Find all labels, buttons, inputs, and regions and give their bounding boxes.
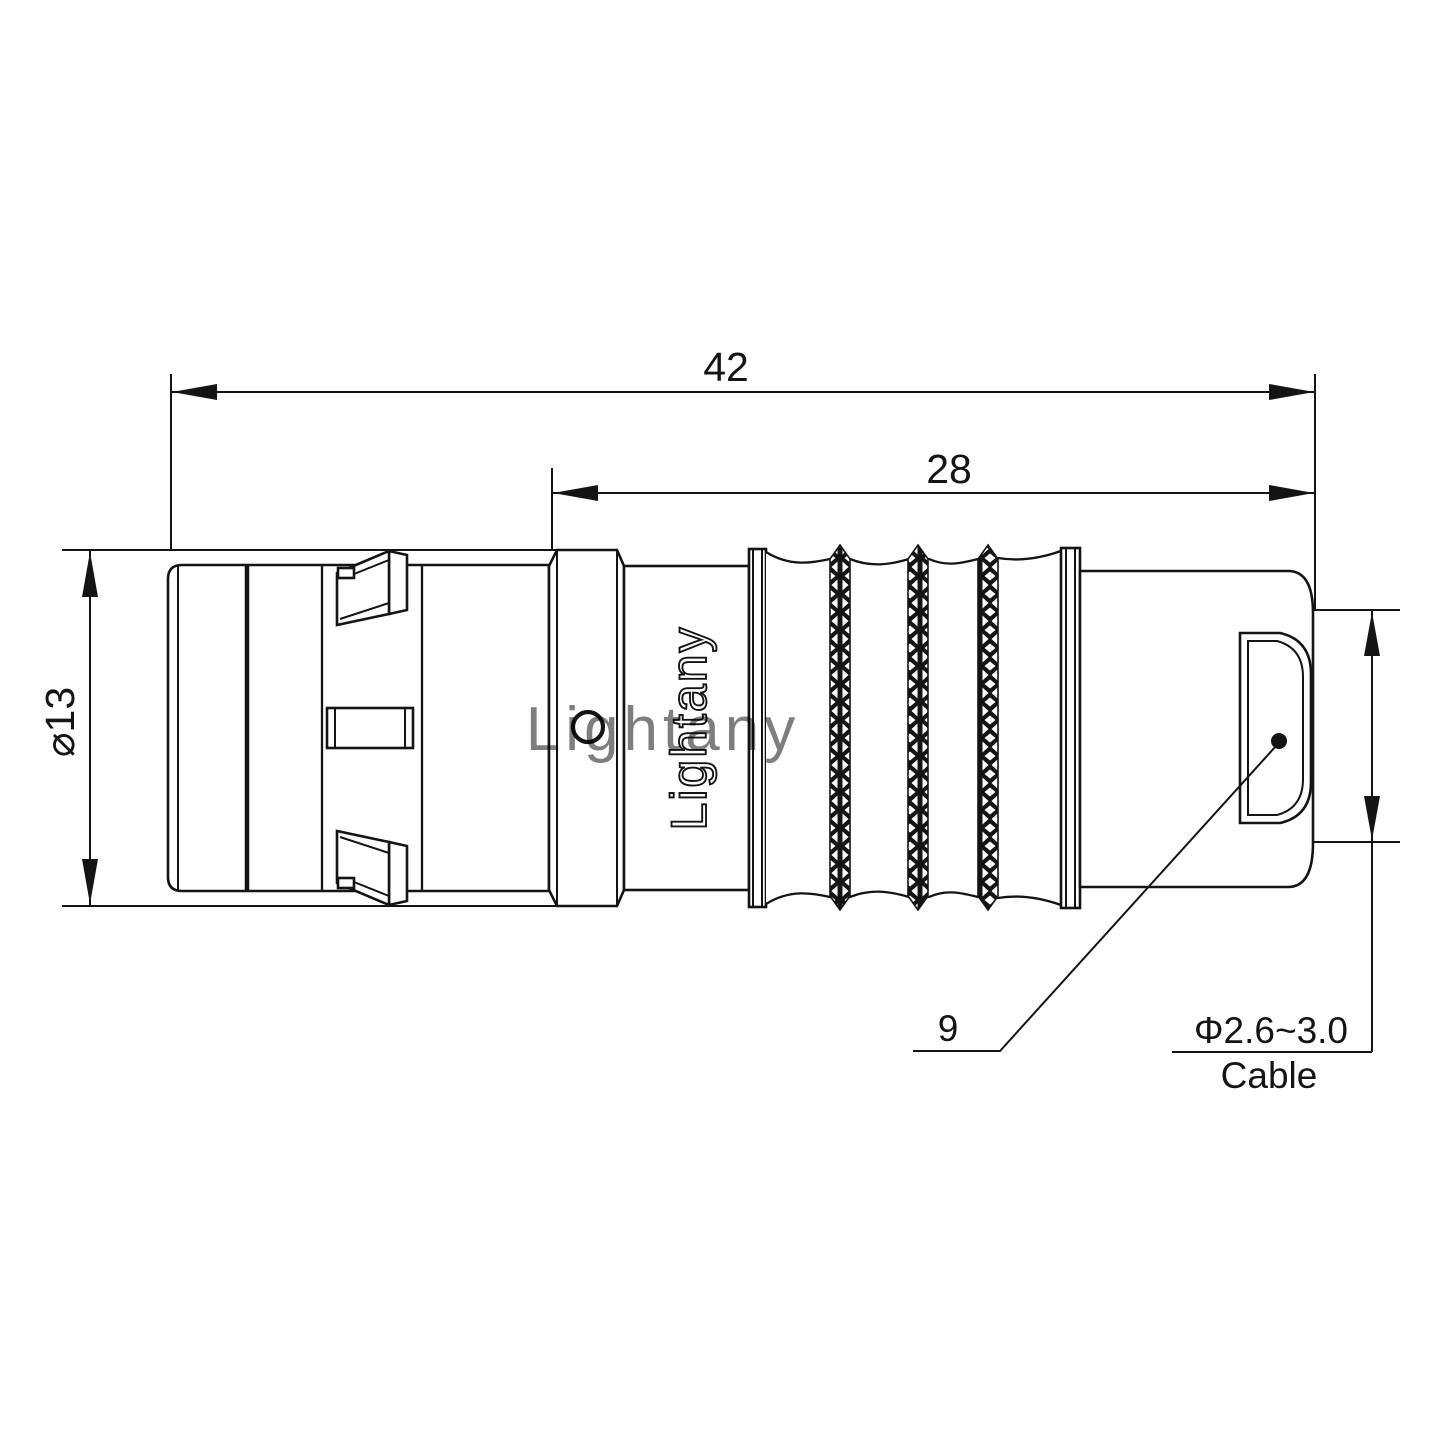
arrowhead-d13-top	[82, 552, 98, 597]
arrowhead-42-right	[1269, 384, 1314, 400]
knurl-band-3	[978, 545, 998, 910]
dim-label-28: 28	[926, 446, 972, 492]
dim-label-cable-range: Φ2.6~3.0	[1194, 1010, 1348, 1051]
technical-drawing-page: Lightany Lightany 42 28 ⌀13 9	[0, 0, 1440, 1440]
watermark-text: Lightany	[526, 695, 800, 764]
dim-label-d13: ⌀13	[37, 687, 83, 757]
end-cap-ring	[1061, 548, 1080, 908]
arrowhead-42-left	[172, 384, 217, 400]
knurl-band-1	[830, 545, 850, 910]
knurl-band-2	[908, 545, 928, 910]
connector-drawing-canvas: Lightany Lightany 42 28 ⌀13 9	[0, 0, 1440, 1440]
rear-body	[1080, 571, 1313, 887]
leader-dot	[1271, 733, 1287, 749]
dim-label-9: 9	[938, 1008, 959, 1049]
knurl-section	[766, 545, 1062, 910]
latch-spring-bar	[327, 708, 413, 748]
arrowhead-d13-bottom	[82, 859, 98, 904]
dim-label-42: 42	[703, 344, 749, 390]
dimension-rear-length: 28	[552, 446, 1315, 550]
arrowhead-cable-bottom	[1364, 796, 1380, 840]
arrowhead-cable-top	[1364, 612, 1380, 656]
front-shell	[168, 551, 549, 905]
arrowhead-28-left	[553, 485, 598, 501]
arrowhead-28-right	[1269, 485, 1314, 501]
dim-label-cable: Cable	[1221, 1055, 1318, 1096]
